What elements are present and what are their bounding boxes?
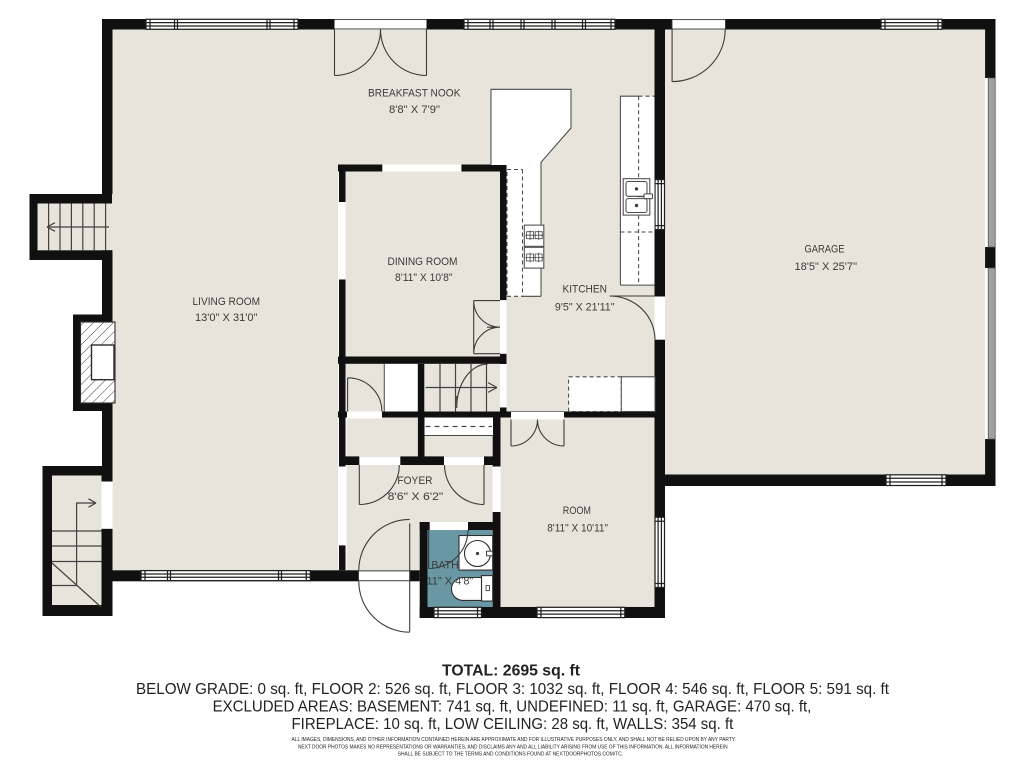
svg-text:KITCHEN: KITCHEN bbox=[563, 284, 607, 296]
svg-text:BREAKFAST NOOK: BREAKFAST NOOK bbox=[368, 88, 461, 100]
svg-text:GARAGE: GARAGE bbox=[805, 244, 845, 256]
svg-text:BELOW GRADE: 0 sq. ft, FLOOR 2: BELOW GRADE: 0 sq. ft, FLOOR 2: 526 sq. … bbox=[136, 681, 890, 698]
svg-text:FOYER: FOYER bbox=[397, 475, 432, 487]
svg-text:8'6" X 6'2": 8'6" X 6'2" bbox=[388, 491, 444, 503]
svg-text:13'0" X 31'0": 13'0" X 31'0" bbox=[195, 312, 258, 324]
svg-text:LIVING ROOM: LIVING ROOM bbox=[193, 296, 261, 308]
svg-text:FIREPLACE: 10 sq. ft, LOW CEIL: FIREPLACE: 10 sq. ft, LOW CEILING: 28 sq… bbox=[292, 716, 734, 733]
svg-text:8'11" X 10'8": 8'11" X 10'8" bbox=[395, 272, 453, 284]
svg-text:ALL IMAGES, DIMENSIONS, AND OT: ALL IMAGES, DIMENSIONS, AND OTHER INFORM… bbox=[292, 737, 736, 743]
svg-text:SHALL BE SUBJECT TO THE TERMS: SHALL BE SUBJECT TO THE TERMS AND CONDIT… bbox=[398, 752, 623, 758]
svg-text:NEXT DOOR PHOTOS MAKES NO REPR: NEXT DOOR PHOTOS MAKES NO REPRESENTATION… bbox=[298, 744, 728, 750]
svg-text:DINING ROOM: DINING ROOM bbox=[388, 256, 458, 268]
svg-text:18'5" X 25'7": 18'5" X 25'7" bbox=[795, 261, 858, 273]
svg-text:BATH: BATH bbox=[431, 559, 458, 571]
svg-text:8'8" X 7'9": 8'8" X 7'9" bbox=[389, 104, 440, 116]
svg-text:EXCLUDED AREAS: BASEMENT: 741: EXCLUDED AREAS: BASEMENT: 741 sq. ft, UN… bbox=[213, 699, 812, 716]
svg-text:9'5" X 21'11": 9'5" X 21'11" bbox=[555, 302, 615, 314]
svg-text:TOTAL: 2695 sq. ft: TOTAL: 2695 sq. ft bbox=[442, 663, 581, 680]
svg-text:ROOM: ROOM bbox=[563, 505, 591, 517]
svg-text:8'11" X 10'11": 8'11" X 10'11" bbox=[547, 522, 608, 534]
